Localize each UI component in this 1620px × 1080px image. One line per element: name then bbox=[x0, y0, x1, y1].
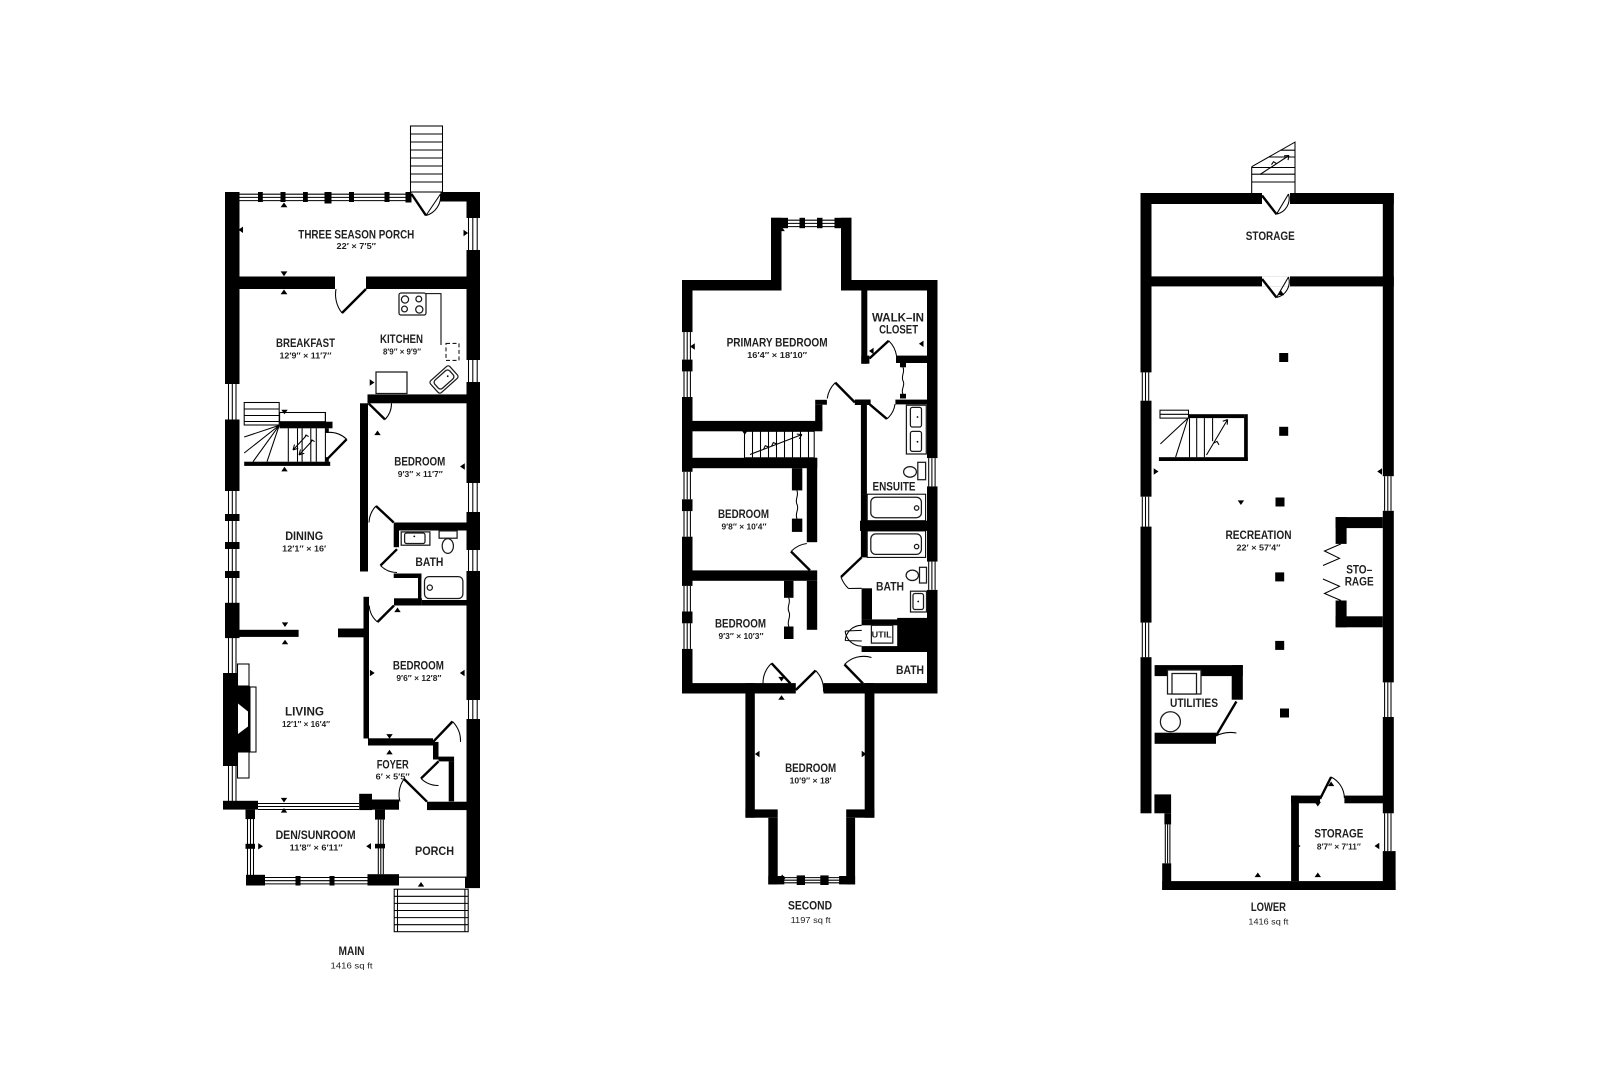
svg-text:9′3″ × 11′7″: 9′3″ × 11′7″ bbox=[398, 469, 443, 479]
svg-text:1416 sq ft: 1416 sq ft bbox=[1248, 917, 1289, 927]
svg-text:1197 sq ft: 1197 sq ft bbox=[791, 915, 832, 925]
svg-text:DINING: DINING bbox=[285, 530, 323, 543]
svg-text:6′ × 5′5″: 6′ × 5′5″ bbox=[376, 772, 410, 782]
svg-text:KITCHEN: KITCHEN bbox=[380, 333, 423, 346]
svg-text:SECOND: SECOND bbox=[788, 900, 832, 913]
svg-text:PORCH: PORCH bbox=[415, 845, 454, 858]
svg-text:9′3″ × 10′3″: 9′3″ × 10′3″ bbox=[719, 631, 764, 641]
svg-text:UTILITIES: UTILITIES bbox=[1170, 697, 1218, 710]
svg-text:FOYER: FOYER bbox=[377, 759, 409, 772]
svg-text:12′1″ × 16′: 12′1″ × 16′ bbox=[282, 544, 326, 554]
svg-text:BATH: BATH bbox=[415, 556, 443, 569]
svg-text:16′4″ × 18′10″: 16′4″ × 18′10″ bbox=[747, 350, 807, 360]
svg-text:WALK–IN: WALK–IN bbox=[872, 311, 924, 324]
svg-text:RECREATION: RECREATION bbox=[1226, 529, 1292, 542]
svg-text:LIVING: LIVING bbox=[285, 706, 324, 719]
svg-text:9′6″ × 12′8″: 9′6″ × 12′8″ bbox=[396, 673, 441, 683]
svg-text:BATH: BATH bbox=[896, 664, 924, 677]
svg-text:THREE SEASON PORCH: THREE SEASON PORCH bbox=[298, 228, 414, 241]
svg-text:STO–: STO– bbox=[1346, 564, 1372, 577]
svg-text:BEDROOM: BEDROOM bbox=[785, 762, 836, 775]
svg-text:22′ × 57′4″: 22′ × 57′4″ bbox=[1237, 543, 1281, 553]
svg-text:10′9″ × 18′: 10′9″ × 18′ bbox=[790, 776, 832, 786]
svg-text:BEDROOM: BEDROOM bbox=[394, 456, 445, 469]
svg-text:CLOSET: CLOSET bbox=[879, 324, 919, 337]
svg-text:STORAGE: STORAGE bbox=[1314, 828, 1363, 841]
svg-text:22′ × 7′5″: 22′ × 7′5″ bbox=[337, 241, 377, 251]
svg-text:8′9″ × 9′9″: 8′9″ × 9′9″ bbox=[383, 347, 421, 357]
svg-text:12′9″ × 11′7″: 12′9″ × 11′7″ bbox=[280, 351, 332, 361]
svg-text:BEDROOM: BEDROOM bbox=[718, 508, 769, 521]
svg-text:UTIL: UTIL bbox=[872, 631, 892, 640]
svg-text:MAIN: MAIN bbox=[339, 945, 365, 958]
svg-text:ENSUITE: ENSUITE bbox=[873, 481, 916, 494]
svg-text:BEDROOM: BEDROOM bbox=[715, 618, 766, 631]
svg-text:1416 sq ft: 1416 sq ft bbox=[331, 961, 374, 971]
svg-text:LOWER: LOWER bbox=[1251, 901, 1286, 914]
svg-text:PRIMARY BEDROOM: PRIMARY BEDROOM bbox=[727, 337, 828, 350]
svg-text:DEN/SUNROOM: DEN/SUNROOM bbox=[276, 829, 356, 842]
svg-text:BATH: BATH bbox=[876, 580, 904, 593]
svg-text:11′8″ × 6′11″: 11′8″ × 6′11″ bbox=[290, 843, 343, 853]
svg-text:STORAGE: STORAGE bbox=[1246, 230, 1295, 243]
svg-text:RAGE: RAGE bbox=[1345, 576, 1374, 589]
svg-text:12′1″ × 16′4″: 12′1″ × 16′4″ bbox=[282, 719, 330, 729]
svg-text:BEDROOM: BEDROOM bbox=[393, 660, 444, 673]
svg-text:9′8″ × 10′4″: 9′8″ × 10′4″ bbox=[722, 522, 767, 532]
svg-text:8′7″ × 7′11″: 8′7″ × 7′11″ bbox=[1317, 842, 1361, 852]
svg-text:BREAKFAST: BREAKFAST bbox=[276, 337, 336, 350]
